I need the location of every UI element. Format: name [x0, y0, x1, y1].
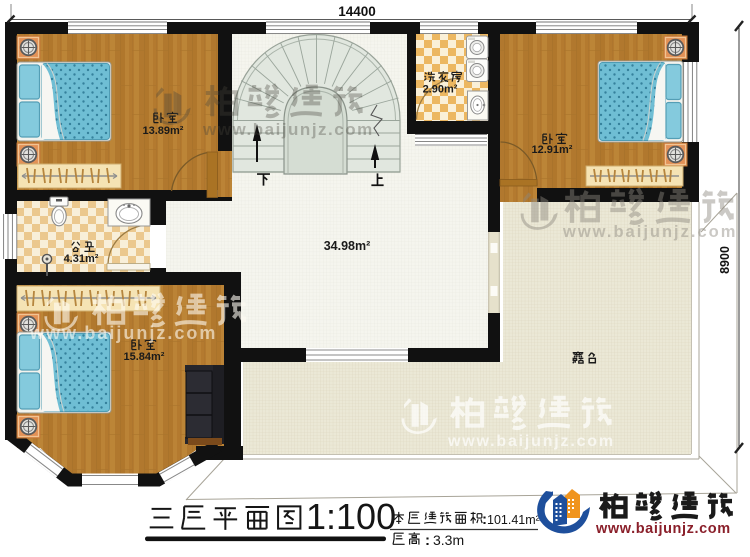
svg-text:1:100: 1:100: [306, 496, 396, 537]
svg-text:4.31m²: 4.31m²: [64, 253, 99, 265]
svg-text:www.baijunjz.com: www.baijunjz.com: [29, 323, 217, 343]
svg-text:3.3m: 3.3m: [433, 532, 464, 548]
svg-text:8900: 8900: [718, 246, 732, 274]
svg-text:101.41m²: 101.41m²: [487, 513, 540, 527]
svg-text:34.98m²: 34.98m²: [324, 239, 371, 253]
svg-text:2.90m²: 2.90m²: [423, 84, 458, 96]
svg-text:12.91m²: 12.91m²: [532, 144, 573, 156]
svg-text:www.baijunjz.com: www.baijunjz.com: [595, 521, 731, 537]
svg-text:14400: 14400: [338, 4, 376, 19]
svg-text:www.baijunjz.com: www.baijunjz.com: [562, 223, 737, 241]
svg-text::: :: [425, 532, 430, 549]
svg-text:www.baijunjz.com: www.baijunjz.com: [447, 433, 615, 450]
svg-text:www.baijunjz.com: www.baijunjz.com: [202, 120, 374, 139]
svg-text:13.89m²: 13.89m²: [143, 125, 184, 137]
svg-text:15.84m²: 15.84m²: [124, 351, 165, 363]
